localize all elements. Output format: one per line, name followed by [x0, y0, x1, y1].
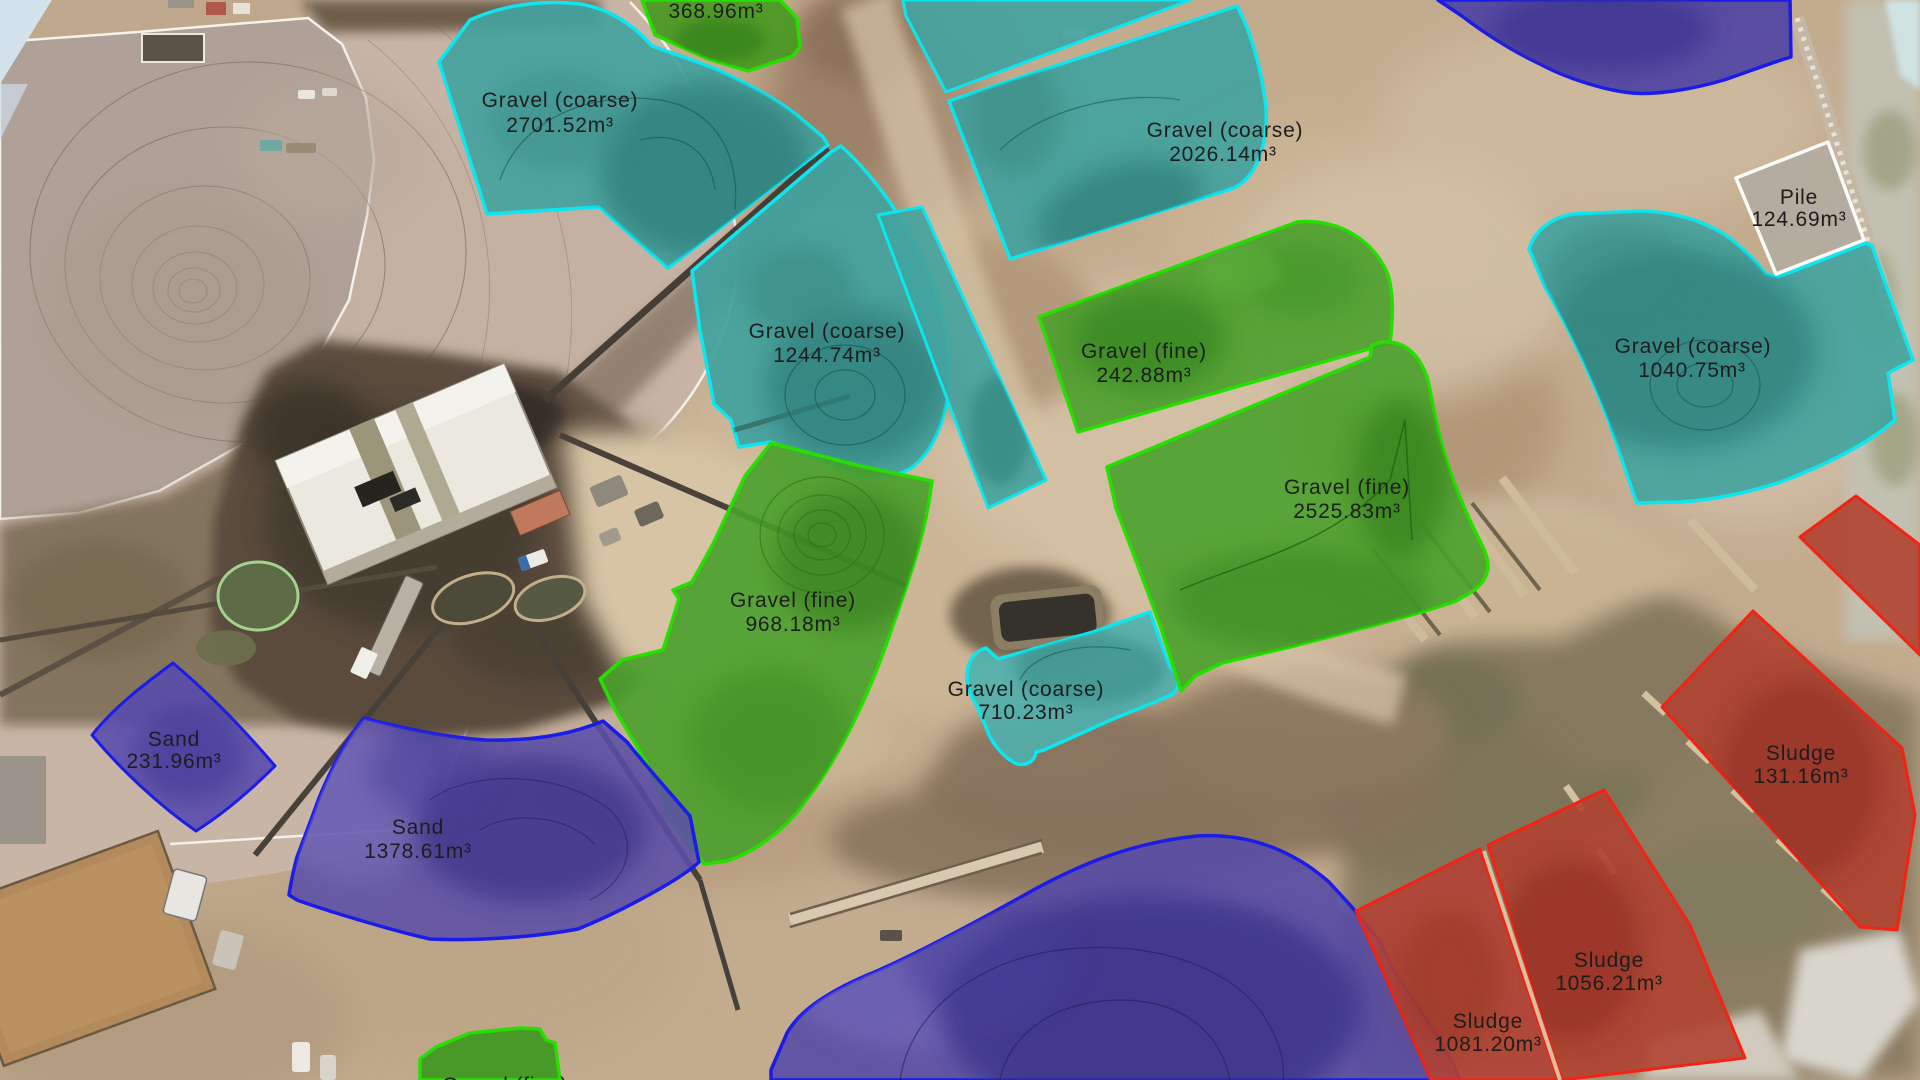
svg-text:Gravel (fine): Gravel (fine) — [442, 1074, 568, 1080]
svg-text:Sludge: Sludge — [1766, 742, 1836, 765]
svg-text:242.88m³: 242.88m³ — [1096, 364, 1191, 387]
svg-text:Sludge: Sludge — [1574, 949, 1644, 972]
svg-text:1081.20m³: 1081.20m³ — [1434, 1033, 1542, 1056]
svg-text:Sand: Sand — [148, 728, 200, 751]
svg-text:368.96m³: 368.96m³ — [668, 0, 763, 23]
svg-text:Gravel (fine): Gravel (fine) — [1081, 340, 1207, 363]
svg-text:2525.83m³: 2525.83m³ — [1293, 500, 1401, 523]
svg-text:Gravel (coarse): Gravel (coarse) — [482, 89, 639, 112]
svg-text:Gravel (fine): Gravel (fine) — [730, 589, 856, 612]
svg-text:2701.52m³: 2701.52m³ — [506, 114, 614, 137]
svg-text:124.69m³: 124.69m³ — [1751, 208, 1846, 231]
svg-text:Sludge: Sludge — [1453, 1010, 1523, 1033]
svg-text:968.18m³: 968.18m³ — [745, 613, 840, 636]
svg-text:131.16m³: 131.16m³ — [1753, 765, 1848, 788]
svg-text:Gravel (coarse): Gravel (coarse) — [1615, 335, 1772, 358]
svg-text:2026.14m³: 2026.14m³ — [1169, 143, 1277, 166]
svg-text:Gravel (coarse): Gravel (coarse) — [948, 678, 1105, 701]
svg-text:Sand: Sand — [392, 816, 444, 839]
svg-text:1056.21m³: 1056.21m³ — [1555, 972, 1663, 995]
svg-text:Gravel (fine): Gravel (fine) — [1284, 476, 1410, 499]
svg-text:Gravel (coarse): Gravel (coarse) — [749, 320, 906, 343]
svg-text:231.96m³: 231.96m³ — [126, 750, 221, 773]
svg-text:1040.75m³: 1040.75m³ — [1638, 359, 1746, 382]
svg-text:1244.74m³: 1244.74m³ — [773, 344, 881, 367]
svg-text:1378.61m³: 1378.61m³ — [364, 840, 472, 863]
svg-text:710.23m³: 710.23m³ — [978, 701, 1073, 724]
svg-text:Gravel (coarse): Gravel (coarse) — [1147, 119, 1304, 142]
svg-text:Pile: Pile — [1780, 186, 1818, 209]
